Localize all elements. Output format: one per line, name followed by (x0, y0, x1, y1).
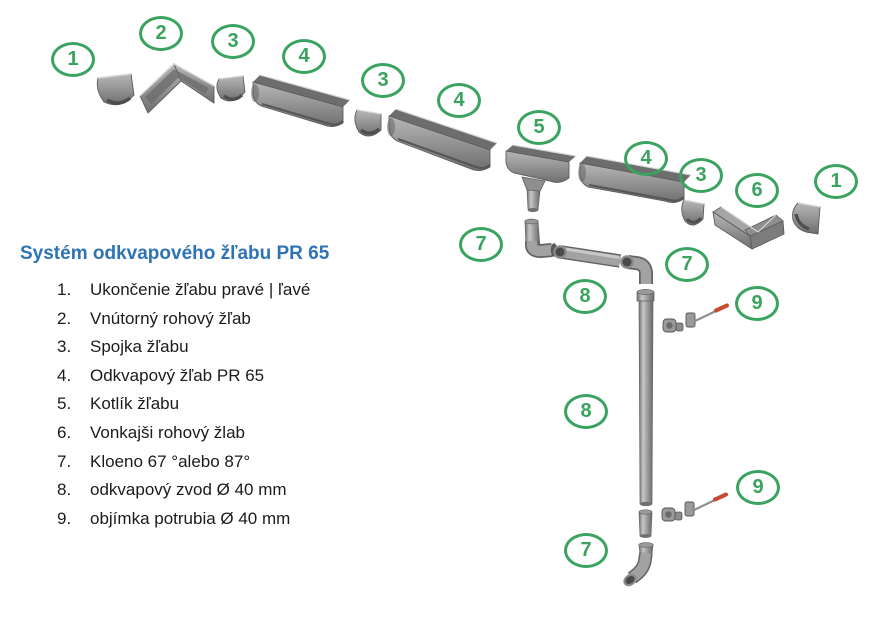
part-badge-4b: 4 (437, 83, 481, 118)
legend-item: 3. Spojka žľabu (57, 337, 310, 366)
legend-item-number: 9. (57, 509, 90, 529)
gutter-outlet-kotlik (506, 145, 576, 212)
legend-item: 6. Vonkajši rohový žlab (57, 423, 310, 452)
legend-item: 1. Ukončenie žľabu pravé | ľavé (57, 280, 310, 309)
part-badge-9-upper: 9 (735, 286, 779, 321)
downpipe-main (637, 289, 654, 506)
gutter-connector-3 (682, 200, 704, 225)
legend-item-label: Vonkajši rohový žlab (90, 423, 245, 443)
part-badge-9-lower: 9 (736, 470, 780, 505)
legend-item: 9. objímka potrubia Ø 40 mm (57, 509, 310, 538)
downpipe-lower-stub (639, 510, 652, 538)
pipe-clamp-upper (663, 306, 727, 333)
part-badge-7-right: 7 (665, 247, 709, 282)
legend-item-label: Ukončenie žľabu pravé | ľavé (90, 280, 310, 300)
elbow-upper-right (620, 255, 646, 284)
part-badge-8-upper: 8 (563, 279, 607, 314)
legend-item-number: 5. (57, 394, 90, 414)
legend-item-number: 1. (57, 280, 90, 300)
gutter-connector-2 (355, 110, 381, 136)
part-badge-8-lower: 8 (564, 394, 608, 429)
part-badge-3c: 3 (679, 158, 723, 193)
legend-item: 5. Kotlík žľabu (57, 394, 310, 423)
pipe-clamp-lower (662, 495, 726, 522)
part-badge-2: 2 (139, 16, 183, 51)
elbow-bottom (621, 543, 653, 589)
legend-item: 8. odkvapový zvod Ø 40 mm (57, 480, 310, 509)
part-badge-7-left: 7 (459, 227, 503, 262)
part-badge-7-bottom: 7 (564, 533, 608, 568)
legend-item-number: 6. (57, 423, 90, 443)
gutter-section-a (251, 75, 350, 127)
legend-item-number: 7. (57, 452, 90, 472)
part-badge-1-left: 1 (51, 42, 95, 77)
legend-item-number: 4. (57, 366, 90, 386)
part-badge-6: 6 (735, 173, 779, 208)
part-badge-5: 5 (517, 110, 561, 145)
page-title: Systém odkvapového žľabu PR 65 (20, 243, 329, 265)
part-badge-3b: 3 (361, 63, 405, 98)
legend-item: 4. Odkvapový žľab PR 65 (57, 366, 310, 395)
legend-item-label: Vnútorný rohový žľab (90, 309, 251, 329)
legend-item-number: 2. (57, 309, 90, 329)
gutter-end-cap-left (97, 74, 134, 105)
legend-item-label: Odkvapový žľab PR 65 (90, 366, 264, 386)
elbow-upper-left (532, 241, 557, 257)
part-badge-4c: 4 (624, 141, 668, 176)
legend-item-label: odkvapový zvod Ø 40 mm (90, 480, 287, 500)
part-badge-1-right: 1 (814, 164, 858, 199)
legend-item: 2. Vnútorný rohový žľab (57, 309, 310, 338)
gutter-section-b (387, 109, 497, 171)
page: 1 2 3 4 3 4 5 4 3 6 1 7 7 8 9 8 9 7 Syst… (0, 0, 885, 622)
legend-item: 7. Kloeno 67 °alebo 87° (57, 452, 310, 481)
legend-item-label: Kotlík žľabu (90, 394, 179, 414)
legend-item-label: objímka potrubia Ø 40 mm (90, 509, 290, 529)
gutter-inner-corner (140, 64, 214, 113)
downpipe-horizontal (553, 245, 620, 261)
gutter-end-cap-right (793, 203, 820, 234)
part-badge-4a: 4 (282, 39, 326, 74)
legend-item-label: Spojka žľabu (90, 337, 189, 357)
gutter-outer-corner (713, 207, 784, 249)
parts-legend: 1. Ukončenie žľabu pravé | ľavé 2. Vnúto… (57, 280, 310, 537)
legend-item-number: 8. (57, 480, 90, 500)
legend-item-number: 3. (57, 337, 90, 357)
gutter-connector-1 (217, 76, 245, 101)
part-badge-3a: 3 (211, 24, 255, 59)
legend-item-label: Kloeno 67 °alebo 87° (90, 452, 250, 472)
